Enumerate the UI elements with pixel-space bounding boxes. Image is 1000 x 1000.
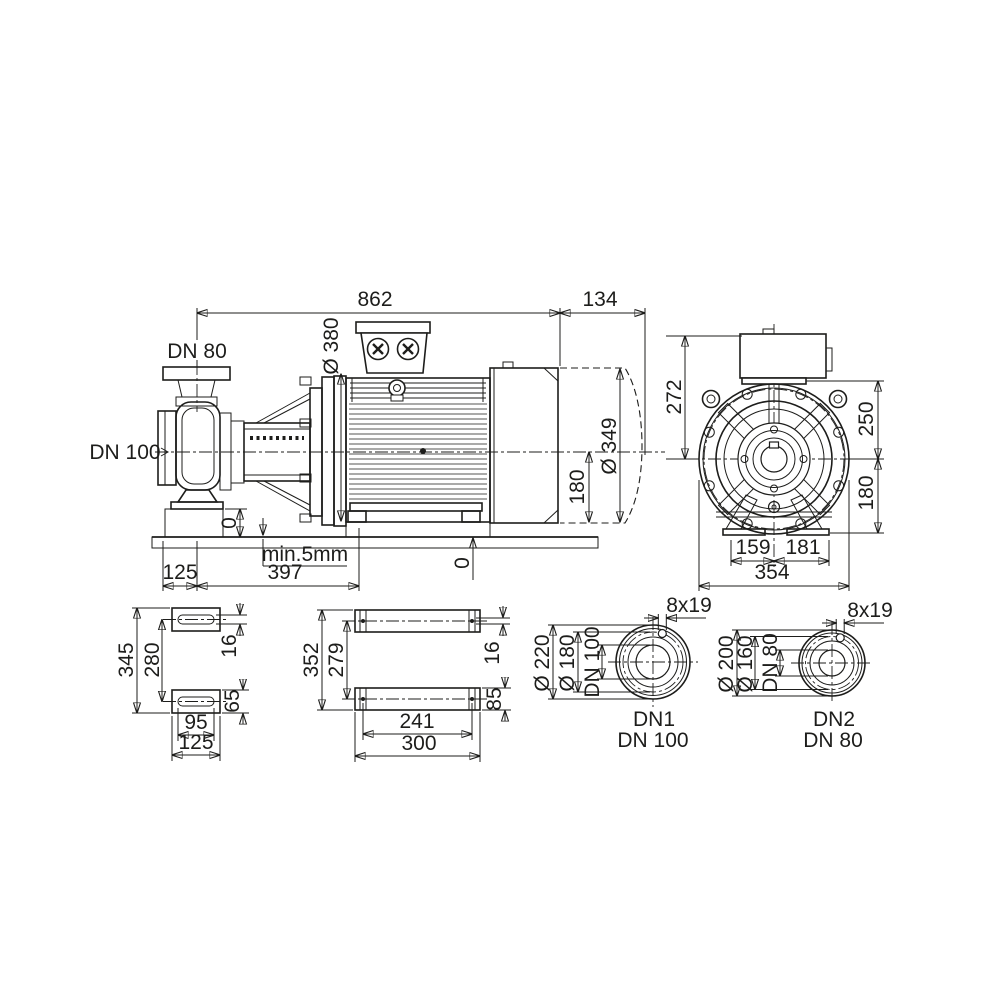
dn1-bolt-note: 8x19 [666, 594, 712, 617]
dim-total-width: 354 [754, 561, 789, 584]
lifting-eye-left-icon [703, 391, 720, 408]
lifting-eye-right-icon [830, 391, 847, 408]
dn1-bolt-hole [658, 630, 666, 638]
dn2-bolt-note: 8x19 [847, 599, 893, 622]
end-view: 272 250 180 159 181 354 [663, 324, 884, 591]
dim-right-foot: 181 [785, 536, 820, 559]
dn2-port-size: DN 80 [803, 729, 863, 752]
dn1-bolt-circle: Ø 180 [556, 634, 579, 691]
dim-foot-offset: 125 [162, 561, 197, 584]
pump-dimension-drawing: 862 134 DN 80 DN 100 Ø 380 Ø 349 180 0 m… [0, 0, 1000, 1000]
dim-motor-od: Ø 349 [598, 417, 621, 474]
dim-foot-span: 397 [267, 561, 302, 584]
dim-motor-foot-level: 0 [451, 557, 474, 569]
drawing-canvas: 862 134 DN 80 DN 100 Ø 380 Ø 349 180 0 m… [0, 0, 1000, 1000]
dim-left-foot: 159 [735, 536, 770, 559]
shaft-keyway [770, 442, 779, 448]
dim-motor-hole-pitch-y: 279 [325, 642, 348, 677]
dn2-port-name: DN2 [813, 708, 855, 731]
dn2-bolt-hole [836, 634, 844, 642]
dim-axis-to-base: 180 [855, 475, 878, 510]
dim-pump-plate-length: 345 [115, 642, 138, 677]
discharge-port-label: DN 80 [167, 340, 227, 363]
dn1-port-size: DN 100 [617, 729, 688, 752]
dim-pump-slot-pitch: 280 [141, 642, 164, 677]
drain-plug-dot [420, 448, 426, 454]
dim-motor-hole-pitch-x: 241 [399, 710, 434, 733]
side-view: 862 134 DN 80 DN 100 Ø 380 Ø 349 180 0 m… [89, 288, 665, 591]
dim-flange-od: Ø 380 [320, 317, 343, 374]
dim-total-length: 862 [357, 288, 392, 311]
pump-foot-plan: 345 280 16 65 95 125 [115, 603, 249, 761]
dn1-nominal: DN 100 [581, 626, 604, 697]
dn1-od: Ø 220 [531, 634, 554, 691]
motor-body [334, 322, 642, 537]
ground [152, 537, 598, 548]
dn1-port-name: DN1 [633, 708, 675, 731]
dim-pump-foot-depth: 65 [221, 689, 244, 712]
dim-motor-plate-length: 352 [300, 642, 323, 677]
ground-hatch [152, 537, 598, 548]
dn2-bolt-circle: Ø 160 [734, 635, 757, 692]
dim-motor-foot-depth: 85 [483, 687, 506, 710]
lifting-eye-icon [389, 380, 405, 401]
terminal-box-side [356, 322, 430, 373]
dim-box-to-axis: 272 [663, 379, 686, 414]
dim-pump-foot-level: 0 [218, 517, 241, 529]
dim-shaft-height-side: 180 [566, 469, 589, 504]
pump-pedestal-hatch [165, 509, 223, 537]
suction-port-label: DN 100 [89, 441, 160, 464]
dim-motor-hole-size: 16 [481, 641, 504, 664]
dim-top-to-axis: 250 [855, 401, 878, 436]
flange-dn2-detail: 8x19 Ø 200 Ø 160 DN 80 DN2 DN 80 [715, 599, 893, 752]
motor-foot-plan: 352 279 16 85 241 300 [300, 606, 511, 762]
dim-pump-plate-width: 125 [178, 731, 213, 754]
motor-grout-hatch [346, 522, 490, 537]
dim-dismantling-space: 134 [582, 288, 617, 311]
flange-dn2-dimensions: 8x19 Ø 200 Ø 160 DN 80 DN2 DN 80 [715, 599, 893, 752]
dn2-nominal: DN 80 [759, 633, 782, 693]
flange-dn1-detail: 8x19 Ø 220 Ø 180 DN 100 DN1 DN 100 [531, 594, 712, 752]
pump-foot-plan-dimensions: 345 280 16 65 95 125 [115, 603, 249, 761]
fan-cover [490, 362, 558, 523]
dim-pump-slot-width: 16 [218, 634, 241, 657]
dim-motor-plate-width: 300 [401, 732, 436, 755]
terminal-box-end [740, 329, 832, 384]
